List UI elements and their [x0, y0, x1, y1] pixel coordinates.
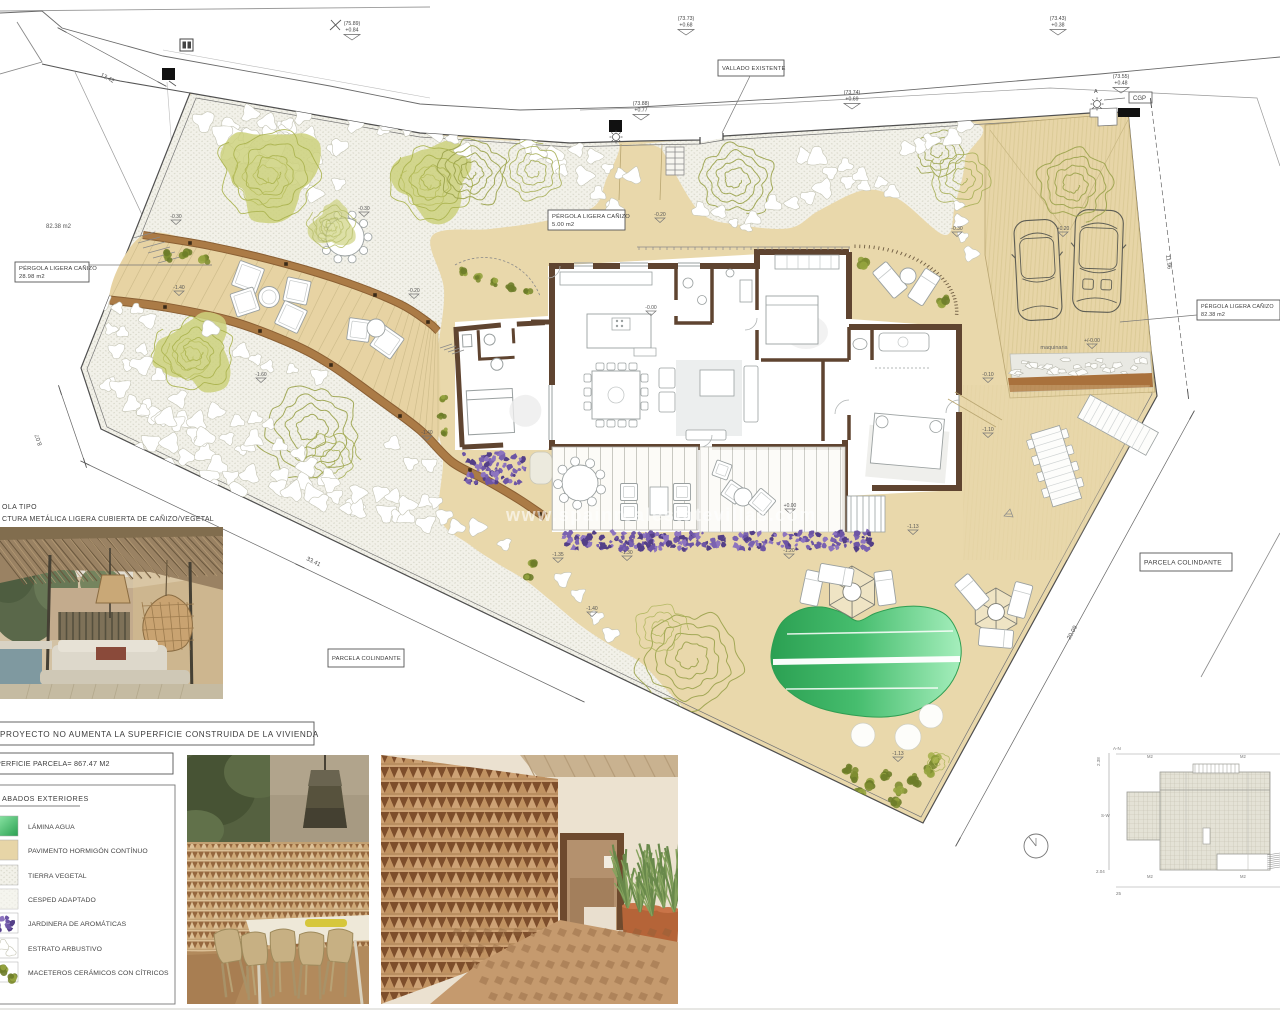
svg-text:-1.60: -1.60 — [255, 372, 267, 378]
svg-text:ABADOS EXTERIORES: ABADOS EXTERIORES — [2, 794, 89, 803]
svg-text:+0.77: +0.77 — [634, 108, 647, 114]
svg-text:M2: M2 — [1240, 874, 1246, 879]
svg-text:(73.55): (73.55) — [1113, 74, 1130, 80]
svg-text:82.38 m2: 82.38 m2 — [1201, 312, 1225, 318]
svg-text:82.38 m2: 82.38 m2 — [46, 224, 72, 230]
svg-text:(73.73): (73.73) — [678, 16, 695, 22]
svg-text:CGP: CGP — [1133, 96, 1146, 102]
svg-text:ESTRATO ARBUSTIVO: ESTRATO ARBUSTIVO — [28, 946, 102, 953]
svg-text:-0.30: -0.30 — [170, 214, 182, 220]
svg-text:-0.20: -0.20 — [654, 212, 666, 218]
svg-text:OLA TIPO: OLA TIPO — [2, 504, 37, 511]
svg-text:28.98 m2: 28.98 m2 — [19, 274, 45, 280]
svg-text:-1.40: -1.40 — [421, 430, 433, 436]
svg-text:-1.40: -1.40 — [586, 606, 598, 612]
svg-text:PÉRGOLA LIGERA CAÑIZO: PÉRGOLA LIGERA CAÑIZO — [19, 265, 97, 272]
svg-text:PÉRGOLA LIGERA CAÑIZO: PÉRGOLA LIGERA CAÑIZO — [1201, 303, 1274, 310]
svg-text:VALLADO EXISTENTE: VALLADO EXISTENTE — [722, 66, 786, 72]
svg-text:JARDINERA DE AROMÁTICAS: JARDINERA DE AROMÁTICAS — [28, 919, 127, 928]
svg-text:CESPED ADAPTADO: CESPED ADAPTADO — [28, 897, 96, 904]
svg-text:-1.40: -1.40 — [173, 285, 185, 291]
svg-text:+0.48: +0.48 — [1114, 81, 1127, 87]
svg-text:maquinaria: maquinaria — [1040, 345, 1068, 351]
svg-text:-1.30: -1.30 — [621, 550, 633, 556]
svg-text:www.spainrealestatevillas.com: www.spainrealestatevillas.com — [505, 505, 817, 525]
svg-text:A: A — [1094, 89, 1098, 95]
svg-text:2.04: 2.04 — [1096, 869, 1105, 874]
svg-text:-0.20: -0.20 — [408, 288, 420, 294]
svg-text:-1.13: -1.13 — [907, 524, 919, 530]
svg-text:-0.30: -0.30 — [951, 226, 963, 232]
svg-text:M2: M2 — [1147, 754, 1153, 759]
svg-text:+0.84: +0.84 — [345, 28, 358, 34]
svg-text:+0.69: +0.69 — [845, 97, 858, 103]
svg-text:MACETEROS CERÁMICOS CON CÍTRIC: MACETEROS CERÁMICOS CON CÍTRICOS — [28, 968, 169, 977]
svg-text:PERFICIE PARCELA= 867.47 M2: PERFICIE PARCELA= 867.47 M2 — [0, 759, 110, 768]
svg-text:M2: M2 — [1240, 754, 1246, 759]
svg-text:+0.20: +0.20 — [1057, 226, 1070, 232]
svg-text:(73.74): (73.74) — [844, 90, 861, 96]
svg-text:(75.89): (75.89) — [344, 21, 361, 27]
svg-text:+0.68: +0.68 — [679, 23, 692, 29]
svg-text:+/-0.00: +/-0.00 — [1084, 338, 1100, 344]
svg-text:PAVIMENTO HORMIGÓN CONTÍNUO: PAVIMENTO HORMIGÓN CONTÍNUO — [28, 846, 148, 855]
svg-text:CTURA METÁLICA LIGERA CUBIERTA: CTURA METÁLICA LIGERA CUBIERTA DE CAÑIZO… — [2, 514, 214, 523]
svg-text:(73.88): (73.88) — [633, 101, 650, 107]
svg-text:S-W: S-W — [1101, 813, 1111, 818]
svg-text:-0.00: -0.00 — [645, 305, 657, 311]
svg-text:5.00 m2: 5.00 m2 — [552, 222, 574, 228]
svg-text:-1.20: -1.20 — [783, 548, 795, 554]
svg-text:PROYECTO NO AUMENTA LA SUPERFI: PROYECTO NO AUMENTA LA SUPERFICIE CONSTR… — [0, 730, 319, 739]
svg-text:-1.13: -1.13 — [892, 751, 904, 757]
svg-text:TIERRA VEGETAL: TIERRA VEGETAL — [28, 873, 87, 880]
svg-text:-0.30: -0.30 — [358, 206, 370, 212]
svg-text:(73.43): (73.43) — [1050, 16, 1067, 22]
svg-text:M2: M2 — [1147, 874, 1153, 879]
svg-text:-1.35: -1.35 — [552, 552, 564, 558]
svg-text:-0.10: -0.10 — [982, 372, 994, 378]
svg-text:LÁMINA AGUA: LÁMINA AGUA — [28, 822, 75, 831]
svg-text:PARCELA COLINDANTE: PARCELA COLINDANTE — [1144, 559, 1222, 566]
svg-text:+0.38: +0.38 — [1051, 23, 1064, 29]
svg-text:-1.10: -1.10 — [982, 427, 994, 433]
svg-text:PÉRGOLA LIGERA CAÑIZO: PÉRGOLA LIGERA CAÑIZO — [552, 213, 630, 220]
svg-text:A-N: A-N — [1113, 746, 1121, 751]
svg-text:2.38: 2.38 — [1096, 757, 1101, 766]
svg-text:25: 25 — [1116, 891, 1122, 896]
svg-text:PARCELA COLINDANTE: PARCELA COLINDANTE — [332, 656, 401, 662]
